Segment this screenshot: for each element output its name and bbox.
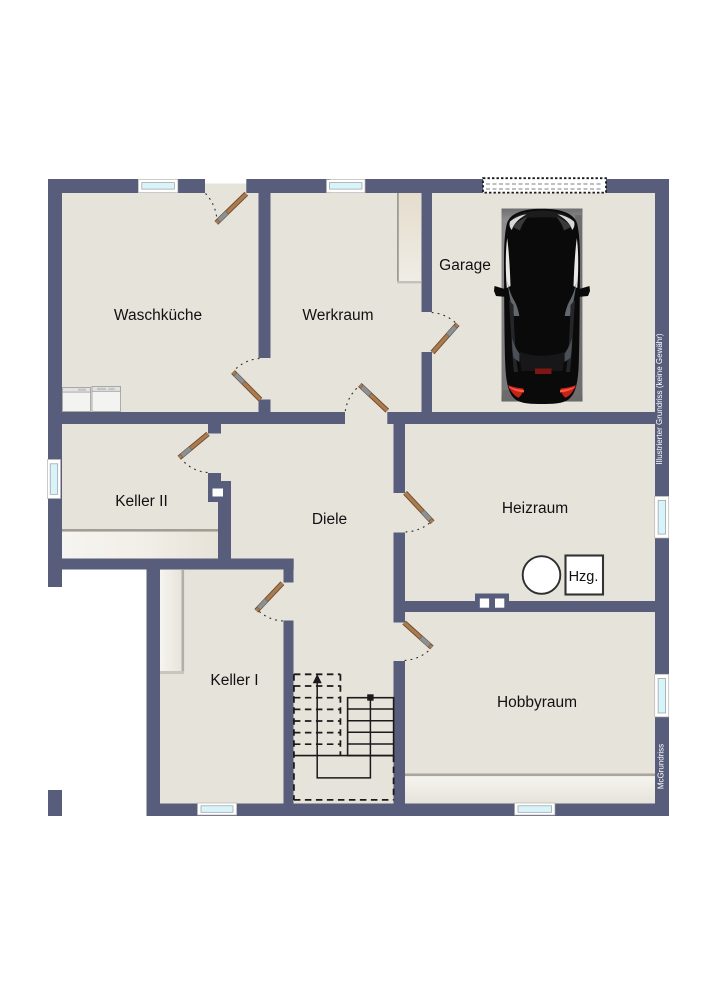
svg-text:Hzg.: Hzg. bbox=[569, 569, 599, 585]
svg-text:Illustrierter Grundriss (keine: Illustrierter Grundriss (keine Gewähr) bbox=[655, 333, 664, 464]
svg-text:Hobbyraum: Hobbyraum bbox=[497, 694, 577, 711]
svg-text:Waschküche: Waschküche bbox=[114, 307, 202, 324]
svg-text:McGrundriss: McGrundriss bbox=[657, 744, 666, 789]
svg-text:Keller II: Keller II bbox=[115, 493, 168, 510]
svg-text:Heizraum: Heizraum bbox=[502, 500, 568, 517]
svg-text:Werkraum: Werkraum bbox=[302, 307, 373, 324]
svg-text:Diele: Diele bbox=[312, 511, 347, 528]
svg-text:Garage: Garage bbox=[439, 257, 491, 274]
svg-text:Keller I: Keller I bbox=[210, 672, 258, 689]
